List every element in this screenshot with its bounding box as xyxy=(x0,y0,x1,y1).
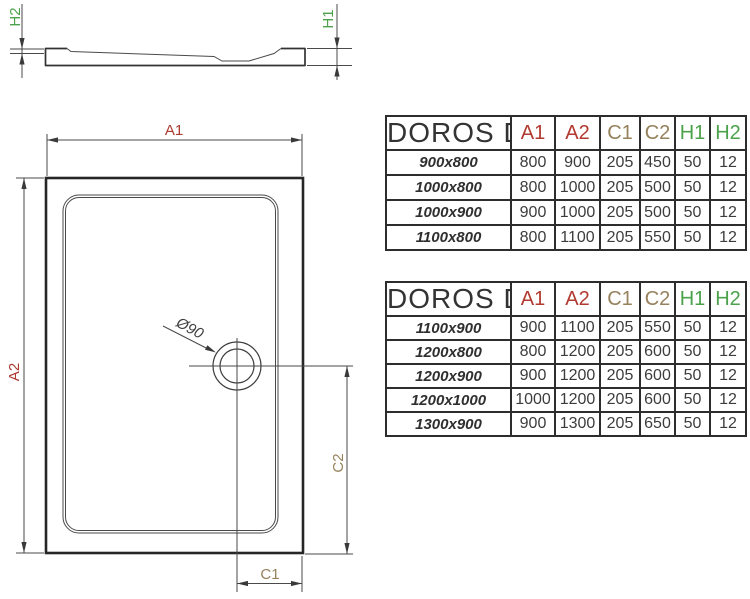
c2-label: C2 xyxy=(330,453,347,472)
value-cell: 12 xyxy=(710,316,746,340)
column-header-h1: H1 xyxy=(675,116,710,150)
a1-dimension: A1 xyxy=(47,122,302,176)
value-cell: 500 xyxy=(640,200,675,225)
h1-label: H1 xyxy=(320,9,337,28)
value-cell: 900 xyxy=(511,412,555,436)
value-cell: 1300 xyxy=(555,412,600,436)
value-cell: 50 xyxy=(675,340,710,364)
value-cell: 50 xyxy=(675,316,710,340)
tray-inner-rim-inner xyxy=(66,198,276,531)
value-cell: 50 xyxy=(675,412,710,436)
value-cell: 205 xyxy=(600,316,640,340)
a1-label: A1 xyxy=(165,122,183,139)
h1-dimension: H1 xyxy=(307,4,352,80)
h2-label: H2 xyxy=(7,7,24,26)
side-view-drawing: H2 H1 xyxy=(7,4,352,80)
table-row: 1200x1000 1000 1200 205 600 50 12 xyxy=(386,388,746,412)
value-cell: 600 xyxy=(640,340,675,364)
column-header-c1: C1 xyxy=(600,282,640,316)
table-row: 1200x800 800 1200 205 600 50 12 xyxy=(386,340,746,364)
a2-label: A2 xyxy=(6,363,23,381)
h2-dimension: H2 xyxy=(7,4,44,78)
value-cell: 50 xyxy=(675,200,710,225)
value-cell: 12 xyxy=(710,150,746,175)
value-cell: 600 xyxy=(640,388,675,412)
value-cell: 500 xyxy=(640,175,675,200)
shower-tray-spec-sheet: H2 H1 xyxy=(0,0,750,599)
table-row: 1000x800 800 1000 205 500 50 12 xyxy=(386,175,746,200)
drain-diameter-label: Ø90 xyxy=(172,314,206,343)
value-cell: 205 xyxy=(600,225,640,250)
value-cell: 1200 xyxy=(555,388,600,412)
size-cell: 1200x900 xyxy=(386,364,511,388)
table-row: 1300x900 900 1300 205 650 50 12 xyxy=(386,412,746,436)
value-cell: 50 xyxy=(675,225,710,250)
value-cell: 900 xyxy=(511,200,555,225)
column-header-c2: C2 xyxy=(640,282,675,316)
value-cell: 205 xyxy=(600,175,640,200)
column-header-c2: C2 xyxy=(640,116,675,150)
tray-profile-outline xyxy=(46,49,306,66)
value-cell: 12 xyxy=(710,412,746,436)
value-cell: 550 xyxy=(640,225,675,250)
tray-profile-inner-surface xyxy=(67,49,281,62)
column-header-h2: H2 xyxy=(710,282,746,316)
value-cell: 50 xyxy=(675,388,710,412)
value-cell: 12 xyxy=(710,175,746,200)
c2-dimension: C2 xyxy=(305,366,353,554)
value-cell: 900 xyxy=(511,364,555,388)
table-title: DOROS D xyxy=(386,116,511,150)
size-cell: 1100x800 xyxy=(386,225,511,250)
value-cell: 1200 xyxy=(555,364,600,388)
value-cell: 205 xyxy=(600,150,640,175)
value-cell: 12 xyxy=(710,388,746,412)
table-header-row: DOROS D A1 A2 C1 C2 H1 H2 xyxy=(386,116,746,150)
value-cell: 900 xyxy=(555,150,600,175)
drain: Ø90 xyxy=(163,314,353,592)
value-cell: 450 xyxy=(640,150,675,175)
value-cell: 550 xyxy=(640,316,675,340)
column-header-h1: H1 xyxy=(675,282,710,316)
drain-leader-arrow xyxy=(205,345,216,352)
table-row: 1000x900 900 1000 205 500 50 12 xyxy=(386,200,746,225)
value-cell: 1100 xyxy=(555,316,600,340)
table-row: 1100x800 800 1100 205 550 50 12 xyxy=(386,225,746,250)
value-cell: 12 xyxy=(710,364,746,388)
table-header-row: DOROS D A1 A2 C1 C2 H1 H2 xyxy=(386,282,746,316)
size-table-2: DOROS D A1 A2 C1 C2 H1 H2 1100x900 900 1… xyxy=(385,281,747,437)
value-cell: 600 xyxy=(640,364,675,388)
table-row: 900x800 800 900 205 450 50 12 xyxy=(386,150,746,175)
value-cell: 50 xyxy=(675,364,710,388)
value-cell: 1200 xyxy=(555,340,600,364)
column-header-a1: A1 xyxy=(511,116,555,150)
size-cell: 1000x900 xyxy=(386,200,511,225)
tray-inner-rim-outer xyxy=(63,195,278,533)
value-cell: 650 xyxy=(640,412,675,436)
value-cell: 1000 xyxy=(555,200,600,225)
value-cell: 205 xyxy=(600,200,640,225)
size-table-1: DOROS D A1 A2 C1 C2 H1 H2 900x800 800 90… xyxy=(385,115,747,251)
value-cell: 800 xyxy=(511,225,555,250)
value-cell: 12 xyxy=(710,225,746,250)
value-cell: 205 xyxy=(600,412,640,436)
c1-dimension: C1 xyxy=(237,556,302,592)
column-header-c1: C1 xyxy=(600,116,640,150)
size-cell: 1200x1000 xyxy=(386,388,511,412)
value-cell: 205 xyxy=(600,340,640,364)
column-header-a1: A1 xyxy=(511,282,555,316)
value-cell: 800 xyxy=(511,175,555,200)
size-cell: 1300x900 xyxy=(386,412,511,436)
value-cell: 12 xyxy=(710,200,746,225)
table-row: 1200x900 900 1200 205 600 50 12 xyxy=(386,364,746,388)
top-view-drawing: Ø90 A1 A2 xyxy=(6,122,353,592)
column-header-a2: A2 xyxy=(555,282,600,316)
value-cell: 900 xyxy=(511,316,555,340)
size-cell: 900x800 xyxy=(386,150,511,175)
table-row: 1100x900 900 1100 205 550 50 12 xyxy=(386,316,746,340)
value-cell: 205 xyxy=(600,388,640,412)
value-cell: 50 xyxy=(675,150,710,175)
value-cell: 50 xyxy=(675,175,710,200)
value-cell: 205 xyxy=(600,364,640,388)
value-cell: 1000 xyxy=(555,175,600,200)
column-header-a2: A2 xyxy=(555,116,600,150)
table-title: DOROS D xyxy=(386,282,511,316)
a2-dimension: A2 xyxy=(6,178,44,553)
value-cell: 1000 xyxy=(511,388,555,412)
value-cell: 12 xyxy=(710,340,746,364)
size-cell: 1200x800 xyxy=(386,340,511,364)
value-cell: 800 xyxy=(511,150,555,175)
size-cell: 1100x900 xyxy=(386,316,511,340)
value-cell: 800 xyxy=(511,340,555,364)
column-header-h2: H2 xyxy=(710,116,746,150)
value-cell: 1100 xyxy=(555,225,600,250)
c1-label: C1 xyxy=(260,566,279,583)
size-cell: 1000x800 xyxy=(386,175,511,200)
